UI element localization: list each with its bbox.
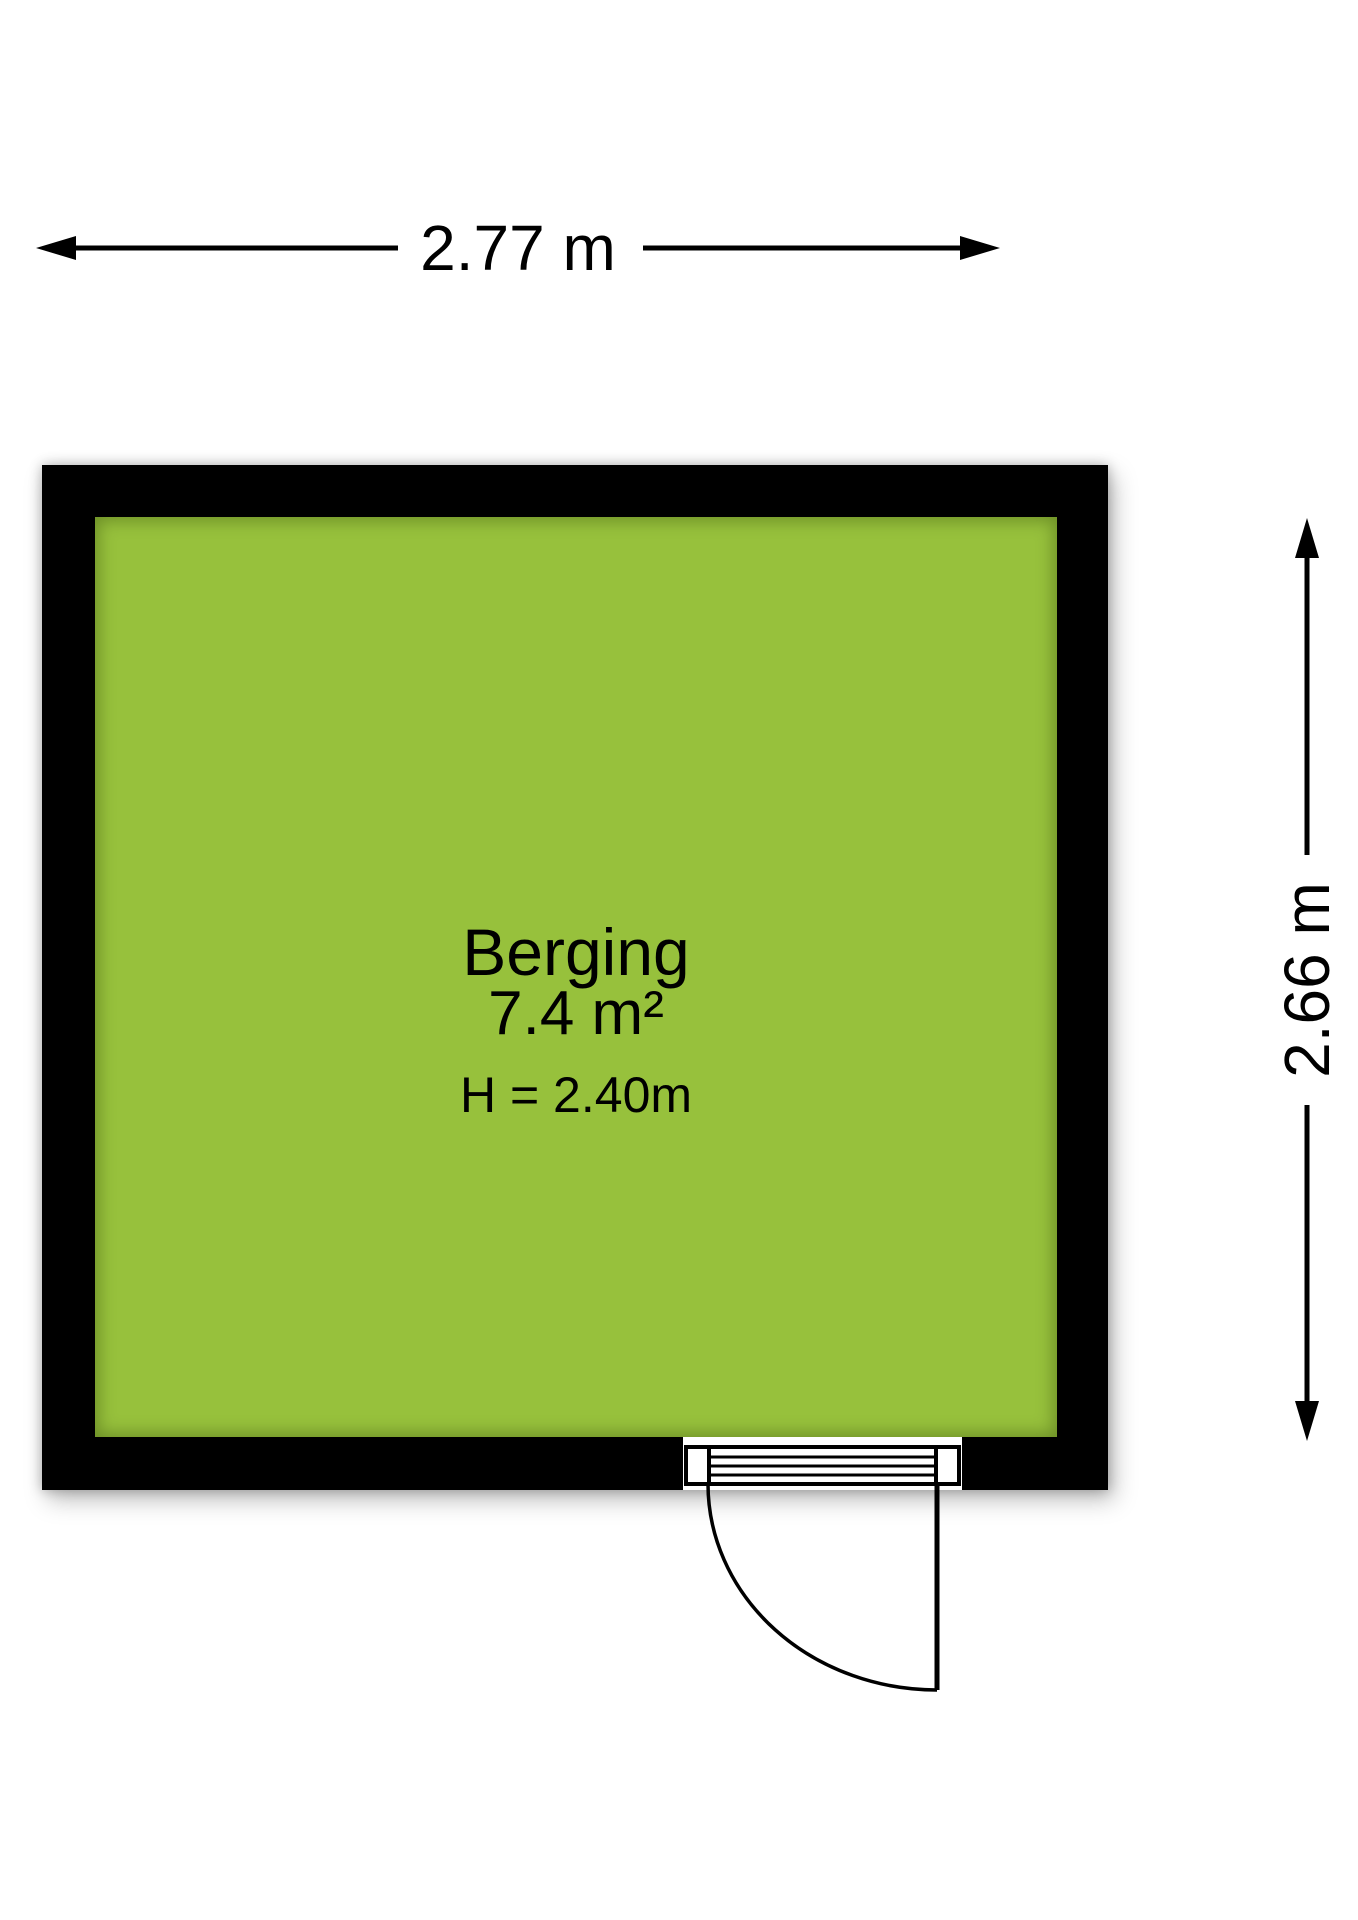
room-area-label: 7.4 m² — [95, 980, 1057, 1048]
arrowhead-up-icon — [1295, 518, 1319, 558]
width-dimension-label: 2.77 m — [36, 204, 1000, 292]
height-dimension-label: 2.66 m — [1267, 680, 1347, 1280]
floorplan-canvas: 2.77 m 2.66 m Berging 7.4 m² H = 2.40m — [0, 0, 1358, 1920]
door-swing-arc — [708, 1484, 937, 1690]
room-ceiling-height-label: H = 2.40m — [95, 1067, 1057, 1123]
arrowhead-down-icon — [1295, 1401, 1319, 1441]
door-opening — [683, 1437, 962, 1490]
room-name-label: Berging — [95, 916, 1057, 988]
